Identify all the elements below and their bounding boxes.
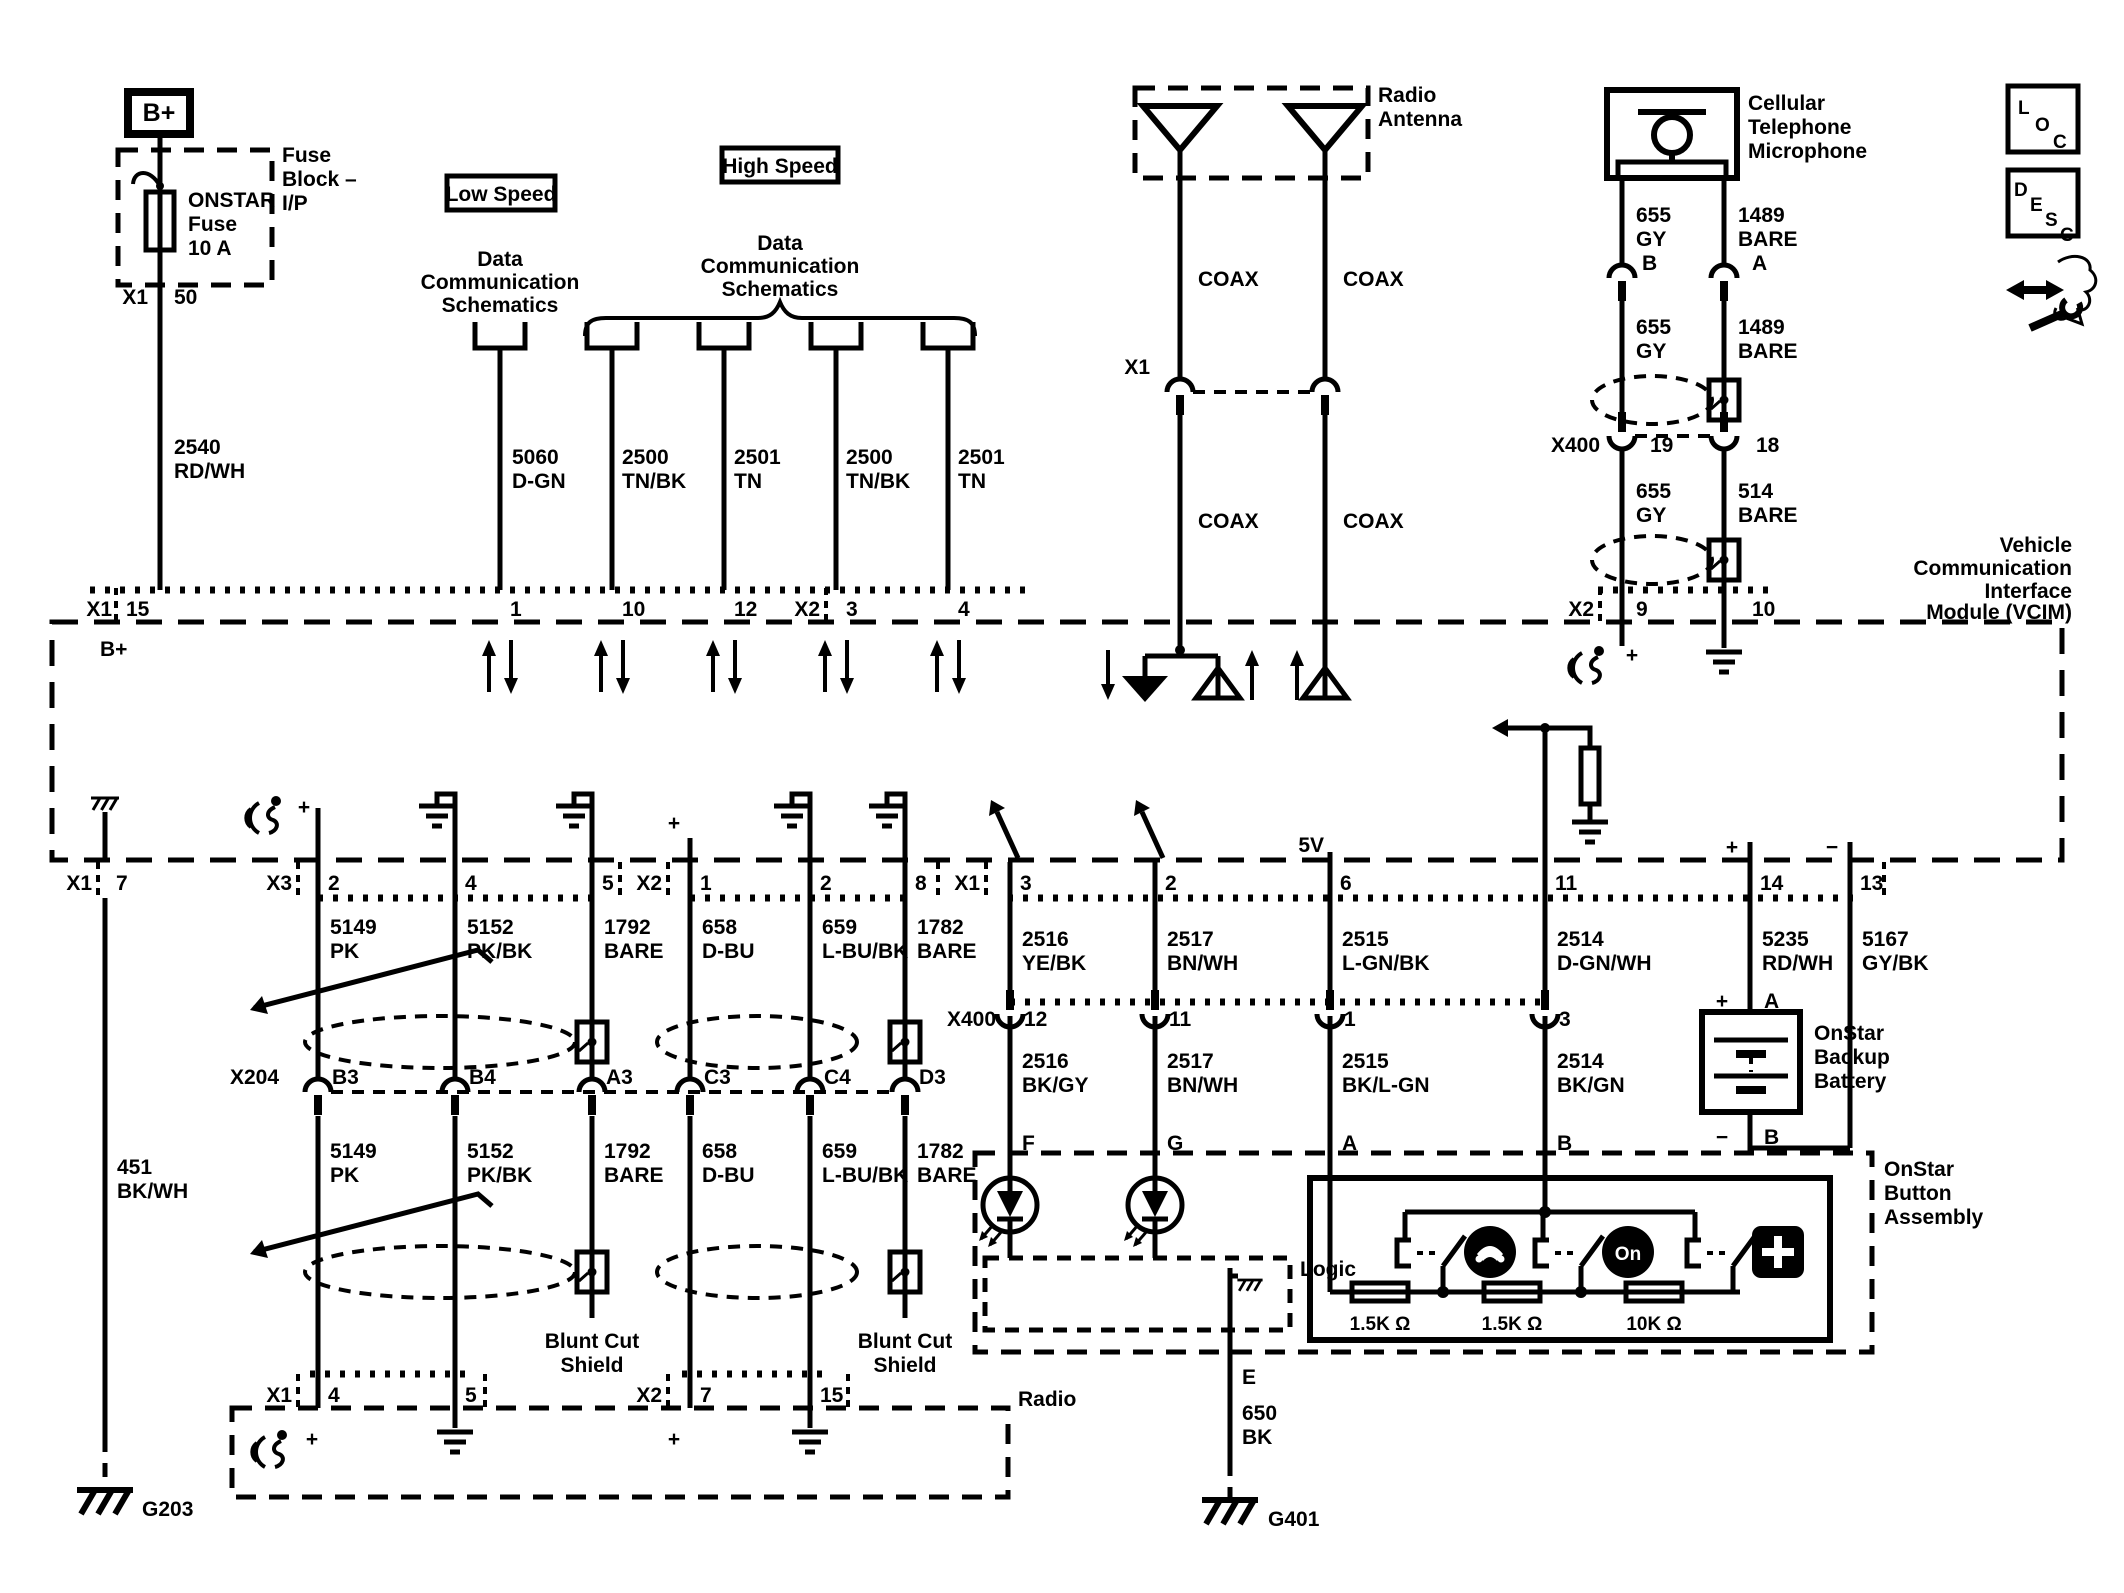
connector-label: X2 xyxy=(1568,598,1594,621)
bus-arrows-icon xyxy=(594,640,630,694)
wire-circuit: 2500 xyxy=(846,446,893,469)
phone-button-icon xyxy=(1464,1226,1516,1278)
connector-label: X2 xyxy=(794,598,820,621)
wire-color: D-BU xyxy=(702,1164,755,1187)
wire-circuit: 659 xyxy=(822,916,857,939)
wire-circuit: 1792 xyxy=(604,1140,651,1163)
connector-label: X204 xyxy=(230,1066,279,1089)
connector-label: X1 xyxy=(86,598,112,621)
wire-circuit: 1489 xyxy=(1738,316,1785,339)
ground-icon xyxy=(1706,652,1742,672)
g401-ground-icon xyxy=(1202,1500,1258,1524)
pin-label: 12 xyxy=(734,598,757,621)
coax-label: COAX xyxy=(1343,510,1404,533)
wire-circuit: 2517 xyxy=(1167,928,1214,951)
switch-icon xyxy=(1535,1236,1603,1292)
shield-ellipse xyxy=(657,1016,857,1068)
vcim-label: Vehicle xyxy=(2000,534,2072,557)
supply-5v-label: 5V xyxy=(1298,834,1324,857)
pin-label: 4 xyxy=(328,1384,340,1407)
shield-ellipse xyxy=(1592,536,1712,584)
wire-circuit: 5152 xyxy=(467,916,514,939)
pin-label: 15 xyxy=(126,598,150,621)
wire-color: TN/BK xyxy=(622,470,686,493)
assembly-label: OnStar xyxy=(1884,1158,1954,1181)
ground-icon xyxy=(91,798,119,810)
data-comm-ref: Data xyxy=(477,248,523,271)
data-comm-ref: Data xyxy=(757,232,803,255)
pin-label: 7 xyxy=(700,1384,712,1407)
ground-icon xyxy=(792,1432,828,1452)
onstar-vcim-schematic: B+ Fuse Block – I/P ONSTAR Fuse 10 A X1 … xyxy=(0,0,2124,1593)
wire-circuit: 2517 xyxy=(1167,1050,1214,1073)
emergency-button-icon xyxy=(1752,1226,1804,1278)
connector-label: X1 xyxy=(954,872,980,895)
g203-ground-icon xyxy=(77,1490,133,1514)
pin-label: A3 xyxy=(606,1066,633,1089)
wire-color: TN xyxy=(734,470,762,493)
legend-icons: L O C D E S C xyxy=(2006,86,2096,328)
battery-label: Backup xyxy=(1814,1046,1890,1069)
wire-circuit: 1782 xyxy=(917,1140,964,1163)
microphone-label: Telephone xyxy=(1748,116,1851,139)
wire-circuit: 2516 xyxy=(1022,1050,1069,1073)
coax-connector xyxy=(1312,379,1338,415)
pin-label: 19 xyxy=(1650,434,1673,457)
data-comm-ref: Communication xyxy=(701,255,860,278)
wire-color: BK/WH xyxy=(117,1180,188,1203)
wire-color: L-BU/BK xyxy=(822,940,908,963)
onstar-button-icon: On xyxy=(1602,1226,1654,1278)
ground-icon xyxy=(1237,1280,1262,1291)
pin-label: 15 xyxy=(820,1384,844,1407)
assembly-label: Button xyxy=(1884,1182,1952,1205)
wire-color: BARE xyxy=(1738,340,1798,363)
wire-color: RD/WH xyxy=(1762,952,1833,975)
wire-circuit: 658 xyxy=(702,1140,737,1163)
pin-label: B4 xyxy=(469,1066,496,1089)
ground-icon xyxy=(437,1432,473,1452)
shield-ellipse xyxy=(305,1016,575,1068)
coax-label: COAX xyxy=(1343,268,1404,291)
wire-circuit: 5149 xyxy=(330,1140,377,1163)
pin-label: D3 xyxy=(919,1066,946,1089)
microphone-label: Microphone xyxy=(1748,140,1867,163)
vcim-label: Module (VCIM) xyxy=(1926,601,2072,624)
desc-icon: D xyxy=(2014,180,2028,201)
pin-label: 18 xyxy=(1756,434,1780,457)
wire-circuit: 451 xyxy=(117,1156,152,1179)
wire-color: BARE xyxy=(1738,504,1798,527)
polarity-plus: + xyxy=(1726,836,1738,859)
wire-circuit: 2540 xyxy=(174,436,221,459)
coax-connector xyxy=(1167,379,1193,415)
data-comm-ref: Communication xyxy=(421,271,580,294)
microphone-icon xyxy=(1654,117,1690,153)
switch-icon xyxy=(1134,800,1163,858)
pin-label: B xyxy=(1642,252,1657,275)
ground-label: G401 xyxy=(1268,1508,1320,1531)
pin-label: 6 xyxy=(1340,872,1352,895)
battery-label: Battery xyxy=(1814,1070,1887,1093)
loc-icon: L xyxy=(2018,98,2030,119)
pin-label: A xyxy=(1752,252,1767,275)
wire-color: BARE xyxy=(604,1164,664,1187)
pin-label: 2 xyxy=(820,872,832,895)
wire-circuit: 655 xyxy=(1636,316,1671,339)
pin-label: 7 xyxy=(116,872,128,895)
wire-circuit: 2515 xyxy=(1342,928,1389,951)
wire-color: GY xyxy=(1636,504,1666,527)
pin-label: 14 xyxy=(1760,872,1784,895)
ground-icon xyxy=(869,806,905,826)
antenna-ground-icon xyxy=(1122,676,1168,702)
desc-icon: S xyxy=(2045,210,2058,231)
loc-icon: O xyxy=(2035,115,2050,136)
repair-tool-icon xyxy=(2006,256,2096,328)
ground-icon xyxy=(1572,822,1608,842)
speaker-audio-circuit: 658 D-BU 659 L-BU/BK 1782 BARE 658 D-BU … xyxy=(657,862,977,1408)
mic-connector xyxy=(1711,265,1737,301)
wire-color: GY/BK xyxy=(1862,952,1929,975)
fuse-connector: X1 xyxy=(122,286,148,309)
polarity-plus: + xyxy=(298,796,310,819)
polarity-minus: − xyxy=(1716,1126,1728,1149)
net-label: B+ xyxy=(100,638,127,661)
wire-color: TN/BK xyxy=(846,470,910,493)
wire-circuit: 655 xyxy=(1636,480,1671,503)
wire-circuit: 2516 xyxy=(1022,928,1069,951)
pin-label: C4 xyxy=(824,1066,851,1089)
pin-label: 3 xyxy=(1559,1008,1571,1031)
fuse-block-label: I/P xyxy=(282,192,308,215)
ground-icon xyxy=(556,806,592,826)
pin-label: 2 xyxy=(1165,872,1177,895)
wire-circuit: 659 xyxy=(822,1140,857,1163)
x204-connector: X204 B3 B4 A3 C3 C4 D3 xyxy=(230,1066,946,1115)
wire-circuit: 5060 xyxy=(512,446,559,469)
fuse-pin: 50 xyxy=(174,286,197,309)
wire-color: BK/GY xyxy=(1022,1074,1089,1097)
mic-connector xyxy=(1609,265,1635,301)
wire-circuit: 658 xyxy=(702,916,737,939)
wire-circuit: 5149 xyxy=(330,916,377,939)
wire-color: BK/L-GN xyxy=(1342,1074,1430,1097)
pin-label: 4 xyxy=(465,872,477,895)
blunt-cut-label: Shield xyxy=(873,1354,936,1377)
wire-color: GY xyxy=(1636,228,1666,251)
high-speed-tag: High Speed xyxy=(722,155,838,178)
resistor-label: 1.5K Ω xyxy=(1350,1314,1411,1335)
wire-circuit: 2514 xyxy=(1557,928,1604,951)
radio-antenna: Radio Antenna COAX COAX X1 COAX COAX xyxy=(1101,84,1462,702)
wire-circuit: 1792 xyxy=(604,916,651,939)
data-bus-columns: Low Speed High Speed Data Communication … xyxy=(421,148,1005,590)
pin-label: 13 xyxy=(1860,872,1883,895)
wire-color: D-GN/WH xyxy=(1557,952,1651,975)
pin-label: 10 xyxy=(1752,598,1775,621)
antenna-label: Radio xyxy=(1378,84,1436,107)
wire-color: PK xyxy=(330,1164,359,1187)
polarity-plus: + xyxy=(668,812,680,835)
speaker-icon xyxy=(1569,646,1604,683)
speaker-icon xyxy=(246,796,281,833)
shield-ellipse xyxy=(657,1246,857,1298)
wire-circuit: 1782 xyxy=(917,916,964,939)
wire-color: BK xyxy=(1242,1426,1272,1449)
desc-icon: E xyxy=(2030,195,2043,216)
wire-circuit: 5152 xyxy=(467,1140,514,1163)
fuse-block-label: Block – xyxy=(282,168,357,191)
wire-color: L-BU/BK xyxy=(822,1164,908,1187)
speaker-icon xyxy=(252,1430,287,1467)
resistor-label: 1.5K Ω xyxy=(1482,1314,1543,1335)
bus-arrows-icon xyxy=(482,640,518,694)
wire-color: BN/WH xyxy=(1167,952,1238,975)
wire-color: RD/WH xyxy=(174,460,245,483)
wire-color: BARE xyxy=(1738,228,1798,251)
wire-color: TN xyxy=(958,470,986,493)
pin-label: B3 xyxy=(332,1066,359,1089)
switch-icon xyxy=(1687,1236,1755,1292)
antenna-connector: X1 xyxy=(1124,356,1150,379)
connector-label: X400 xyxy=(947,1008,996,1031)
polarity-plus: + xyxy=(306,1428,318,1451)
wire-color: D-BU xyxy=(702,940,755,963)
wire-color: BARE xyxy=(917,1164,977,1187)
connector-label: X1 xyxy=(66,872,92,895)
connector-label: X2 xyxy=(636,1384,662,1407)
pin-label: 9 xyxy=(1636,598,1648,621)
wire-circuit: 2515 xyxy=(1342,1050,1389,1073)
microphone-label: Cellular xyxy=(1748,92,1825,115)
wire-circuit: 650 xyxy=(1242,1402,1277,1425)
pin-label: 3 xyxy=(1020,872,1032,895)
bus-arrows-icon xyxy=(818,640,854,694)
wire-circuit: 2501 xyxy=(734,446,781,469)
onstar-button-assembly: OnStar Button Assembly Logic E 650 BK G4… xyxy=(975,1153,1984,1531)
wire-circuit: 1489 xyxy=(1738,204,1785,227)
pin-label: 10 xyxy=(622,598,645,621)
data-comm-ref: Schematics xyxy=(442,294,559,317)
wire-color: PK xyxy=(330,940,359,963)
bus-arrows-icon xyxy=(930,640,966,694)
onstar-button-label: On xyxy=(1615,1244,1641,1265)
antenna-label: Antenna xyxy=(1378,108,1462,131)
ground-icon xyxy=(774,806,810,826)
resistor-label: 10K Ω xyxy=(1626,1314,1681,1335)
assembly-label: Assembly xyxy=(1884,1206,1984,1229)
wire-circuit: 2500 xyxy=(622,446,669,469)
wire-color: BARE xyxy=(604,940,664,963)
mic-audio-circuit: 5149 PK 5152 PK/BK 1792 BARE 5149 PK 515… xyxy=(250,862,664,1408)
fuse-block-label: Fuse xyxy=(282,144,331,167)
wire-circuit: 2501 xyxy=(958,446,1005,469)
wire-circuit: 5235 xyxy=(1762,928,1809,951)
shield-ellipse xyxy=(305,1246,575,1298)
wire-color: BN/WH xyxy=(1167,1074,1238,1097)
pin-label: 12 xyxy=(1024,1008,1047,1031)
polarity-plus: + xyxy=(1626,644,1638,667)
pin-label: 5 xyxy=(602,872,614,895)
polarity-plus: + xyxy=(668,1428,680,1451)
wire-circuit: 514 xyxy=(1738,480,1773,503)
pin-label: 1 xyxy=(510,598,522,621)
pin-label: 11 xyxy=(1555,872,1578,895)
low-speed-tag: Low Speed xyxy=(446,183,557,206)
fuse-label: Fuse xyxy=(188,213,237,236)
ground-label: G203 xyxy=(142,1498,193,1521)
radio-unit: X1 4 5 X2 7 15 Radio + + xyxy=(232,1374,1076,1497)
backup-battery: 5235 RD/WH 5167 GY/BK + A OnStar Backup … xyxy=(1702,862,1929,1149)
pin-label: 2 xyxy=(328,872,340,895)
connector-label: X3 xyxy=(266,872,292,895)
b-plus-label: B+ xyxy=(143,99,176,127)
pin-label: 3 xyxy=(846,598,858,621)
pin-label: 8 xyxy=(915,872,927,895)
wire-color: YE/BK xyxy=(1022,952,1086,975)
vcim-label: Communication xyxy=(1913,557,2072,580)
pin-label: 5 xyxy=(465,1384,477,1407)
pin-label: 11 xyxy=(1169,1008,1192,1031)
blunt-cut-label: Shield xyxy=(560,1354,623,1377)
power-feed: B+ Fuse Block – I/P ONSTAR Fuse 10 A X1 … xyxy=(118,92,357,590)
battery-label: OnStar xyxy=(1814,1022,1884,1045)
shield-ellipse xyxy=(1592,376,1712,424)
fuse-label: ONSTAR xyxy=(188,189,275,212)
desc-icon: C xyxy=(2060,225,2074,246)
connector-label: X2 xyxy=(636,872,662,895)
wire-circuit: 2514 xyxy=(1557,1050,1604,1073)
vcim-module: Vehicle Communication Interface Module (… xyxy=(52,534,2072,898)
pin-label: 1 xyxy=(1344,1008,1356,1031)
wiring-diagram: B+ Fuse Block – I/P ONSTAR Fuse 10 A X1 … xyxy=(0,0,2124,1593)
coax-label: COAX xyxy=(1198,510,1259,533)
connector-label: X1 xyxy=(266,1384,292,1407)
pin-label: C3 xyxy=(704,1066,731,1089)
wire-circuit: 5167 xyxy=(1862,928,1909,951)
switch-icon xyxy=(989,800,1018,858)
wire-color: PK/BK xyxy=(467,1164,532,1187)
coax-label: COAX xyxy=(1198,268,1259,291)
pin-label: E xyxy=(1242,1366,1256,1389)
ground-icon xyxy=(419,806,455,826)
wire-color: GY xyxy=(1636,340,1666,363)
wire-color: BK/GN xyxy=(1557,1074,1625,1097)
blunt-cut-label: Blunt Cut xyxy=(545,1330,639,1353)
bus-arrows-icon xyxy=(706,640,742,694)
ground-451-circuit: 451 BK/WH G203 xyxy=(77,898,193,1521)
wire-color: L-GN/BK xyxy=(1342,952,1430,975)
wire-circuit: 655 xyxy=(1636,204,1671,227)
loc-icon: C xyxy=(2053,132,2067,153)
radio-label: Radio xyxy=(1018,1388,1076,1411)
blunt-cut-label: Blunt Cut xyxy=(858,1330,952,1353)
polarity-minus: − xyxy=(1826,836,1838,859)
connector-label: X400 xyxy=(1551,434,1600,457)
fuse-label: 10 A xyxy=(188,237,232,260)
pin-label: 1 xyxy=(700,872,712,895)
wire-color: D-GN xyxy=(512,470,566,493)
button-circuit: 2516 YE/BK 2517 BN/WH 2515 L-GN/BK 2514 … xyxy=(947,862,1652,1178)
vcim-label: Interface xyxy=(1984,580,2072,603)
wire-color: BARE xyxy=(917,940,977,963)
pin-label: 4 xyxy=(958,598,970,621)
